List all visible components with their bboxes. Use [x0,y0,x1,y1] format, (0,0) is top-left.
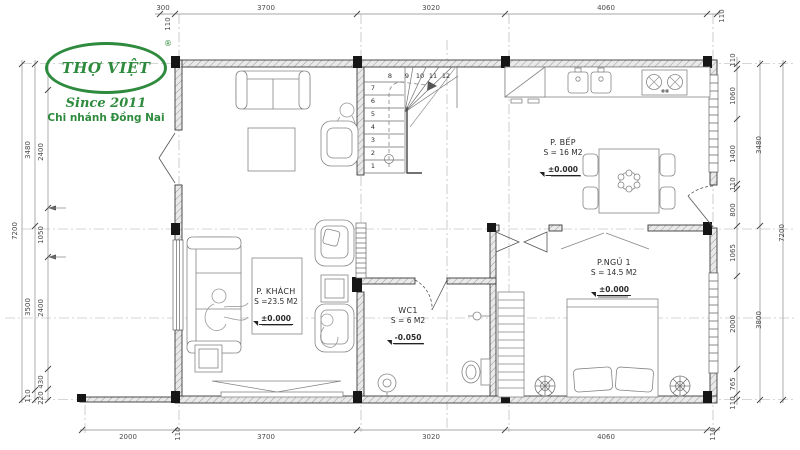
dim-label: 1050 [37,226,45,244]
level-value: ±0.000 [597,285,631,295]
chair [660,187,675,209]
dim-label: 4060 [597,4,615,12]
dim-label: 765 [729,377,737,390]
entry-door [159,133,175,183]
stair-rail [407,107,422,173]
logo: THỢ VIỆT ® Since 2011 Chi nhánh Đồng Nai [38,42,174,124]
stair-step-number: 3 [371,136,375,144]
dim-label: 2000 [729,315,737,333]
bedroom-double-door-swing [561,233,649,249]
room-label-kitchen: P. BẾP S = 16 M2 ±0.000 [544,138,583,177]
dim-label: 2000 [119,433,137,441]
dim-label: 110 [174,427,182,440]
dim-label: 2400 [37,143,45,161]
dim-label: 110 [729,177,737,190]
chair [660,154,675,176]
dim-label: 7200 [11,222,19,240]
chair [583,187,598,209]
coffee-table [248,128,295,171]
dim-label: 220 [37,391,45,404]
stair-step-number: 9 [405,72,409,80]
dim-label: 800 [729,203,737,216]
stair-step-number: 7 [371,84,375,92]
floor-plan: THỢ VIỆT ® Since 2011 Chi nhánh Đồng Nai… [0,0,800,450]
furniture-kitchen [505,67,710,213]
dim-label: 7200 [778,224,786,242]
fan-icon [535,376,555,396]
dim-label: 3700 [257,433,275,441]
dim-label: 3700 [257,4,275,12]
stair-step-number: 6 [371,97,375,105]
dim-label: 1400 [729,145,737,163]
dim-label: 3020 [422,433,440,441]
bedroom-door-leaf-right [524,232,547,252]
dim-label: 110 [164,17,172,30]
fan-icon [670,376,690,396]
dim-arrows [48,206,66,260]
furniture-living [187,71,358,397]
dim-label: 300 [156,4,169,12]
room-label-bedroom: P.NGỦ 1 S = 14.5 M2 ±0.000 [591,258,637,297]
room-label-wc: WC1 S = 6 M2 -0.050 [391,306,425,345]
level-value: ±0.000 [546,165,580,175]
dim-label: 3020 [422,4,440,12]
chair [583,154,598,176]
logo-oval: THỢ VIỆT ® [45,42,167,94]
stair-step-number: 11 [429,72,437,80]
dim-label: 4060 [597,433,615,441]
sofa-three-seat [187,237,241,353]
dim-label: 3800 [755,311,763,329]
bedroom-door-leaf-left [496,232,519,252]
kitchen-door-leaf [688,196,713,227]
toilet-tank [481,359,490,385]
sink [568,72,588,93]
dim-label: 3480 [755,136,763,154]
stair-step-number: 10 [416,72,424,80]
level-value: -0.050 [393,333,424,343]
pillow [573,367,613,393]
furniture-bedroom [498,292,690,397]
dim-label: 110 [24,389,32,402]
wc-door-leaf [432,280,447,310]
dim-label: 1060 [729,87,737,105]
dim-label: 110 [729,53,737,66]
logo-tagline: Since 2011 [38,96,174,111]
stair-step-number: 5 [371,110,375,118]
dim-label: 3500 [24,298,32,316]
tv-cabinet [221,392,343,397]
dim-label: 2400 [37,299,45,317]
dim-label: 110 [718,9,726,22]
logo-branch: Chi nhánh Đồng Nai [38,112,174,124]
stair-step-number: 2 [371,149,375,157]
stair-step-number: 4 [371,123,375,131]
dim-label: 430 [37,375,45,388]
tv [212,381,341,392]
pillow [615,367,654,393]
stair-step-number: 12 [442,72,450,80]
stair-step-number: 1 [371,162,375,170]
level-value: ±0.000 [259,314,293,324]
sink [591,72,611,93]
logo-brand: THỢ VIỆT [62,59,151,77]
valve-icon [473,312,481,320]
registered-mark-icon: ® [164,39,172,48]
partition-screen [356,223,366,278]
dim-label: 3480 [24,141,32,159]
dim-label: 110 [729,396,737,409]
stair-step-number: 8 [388,72,392,80]
dim-label: 1065 [729,244,737,262]
dim-label: 110 [709,427,717,440]
room-label-living: P. KHÁCH S =23.5 M2 ±0.000 [254,287,298,326]
